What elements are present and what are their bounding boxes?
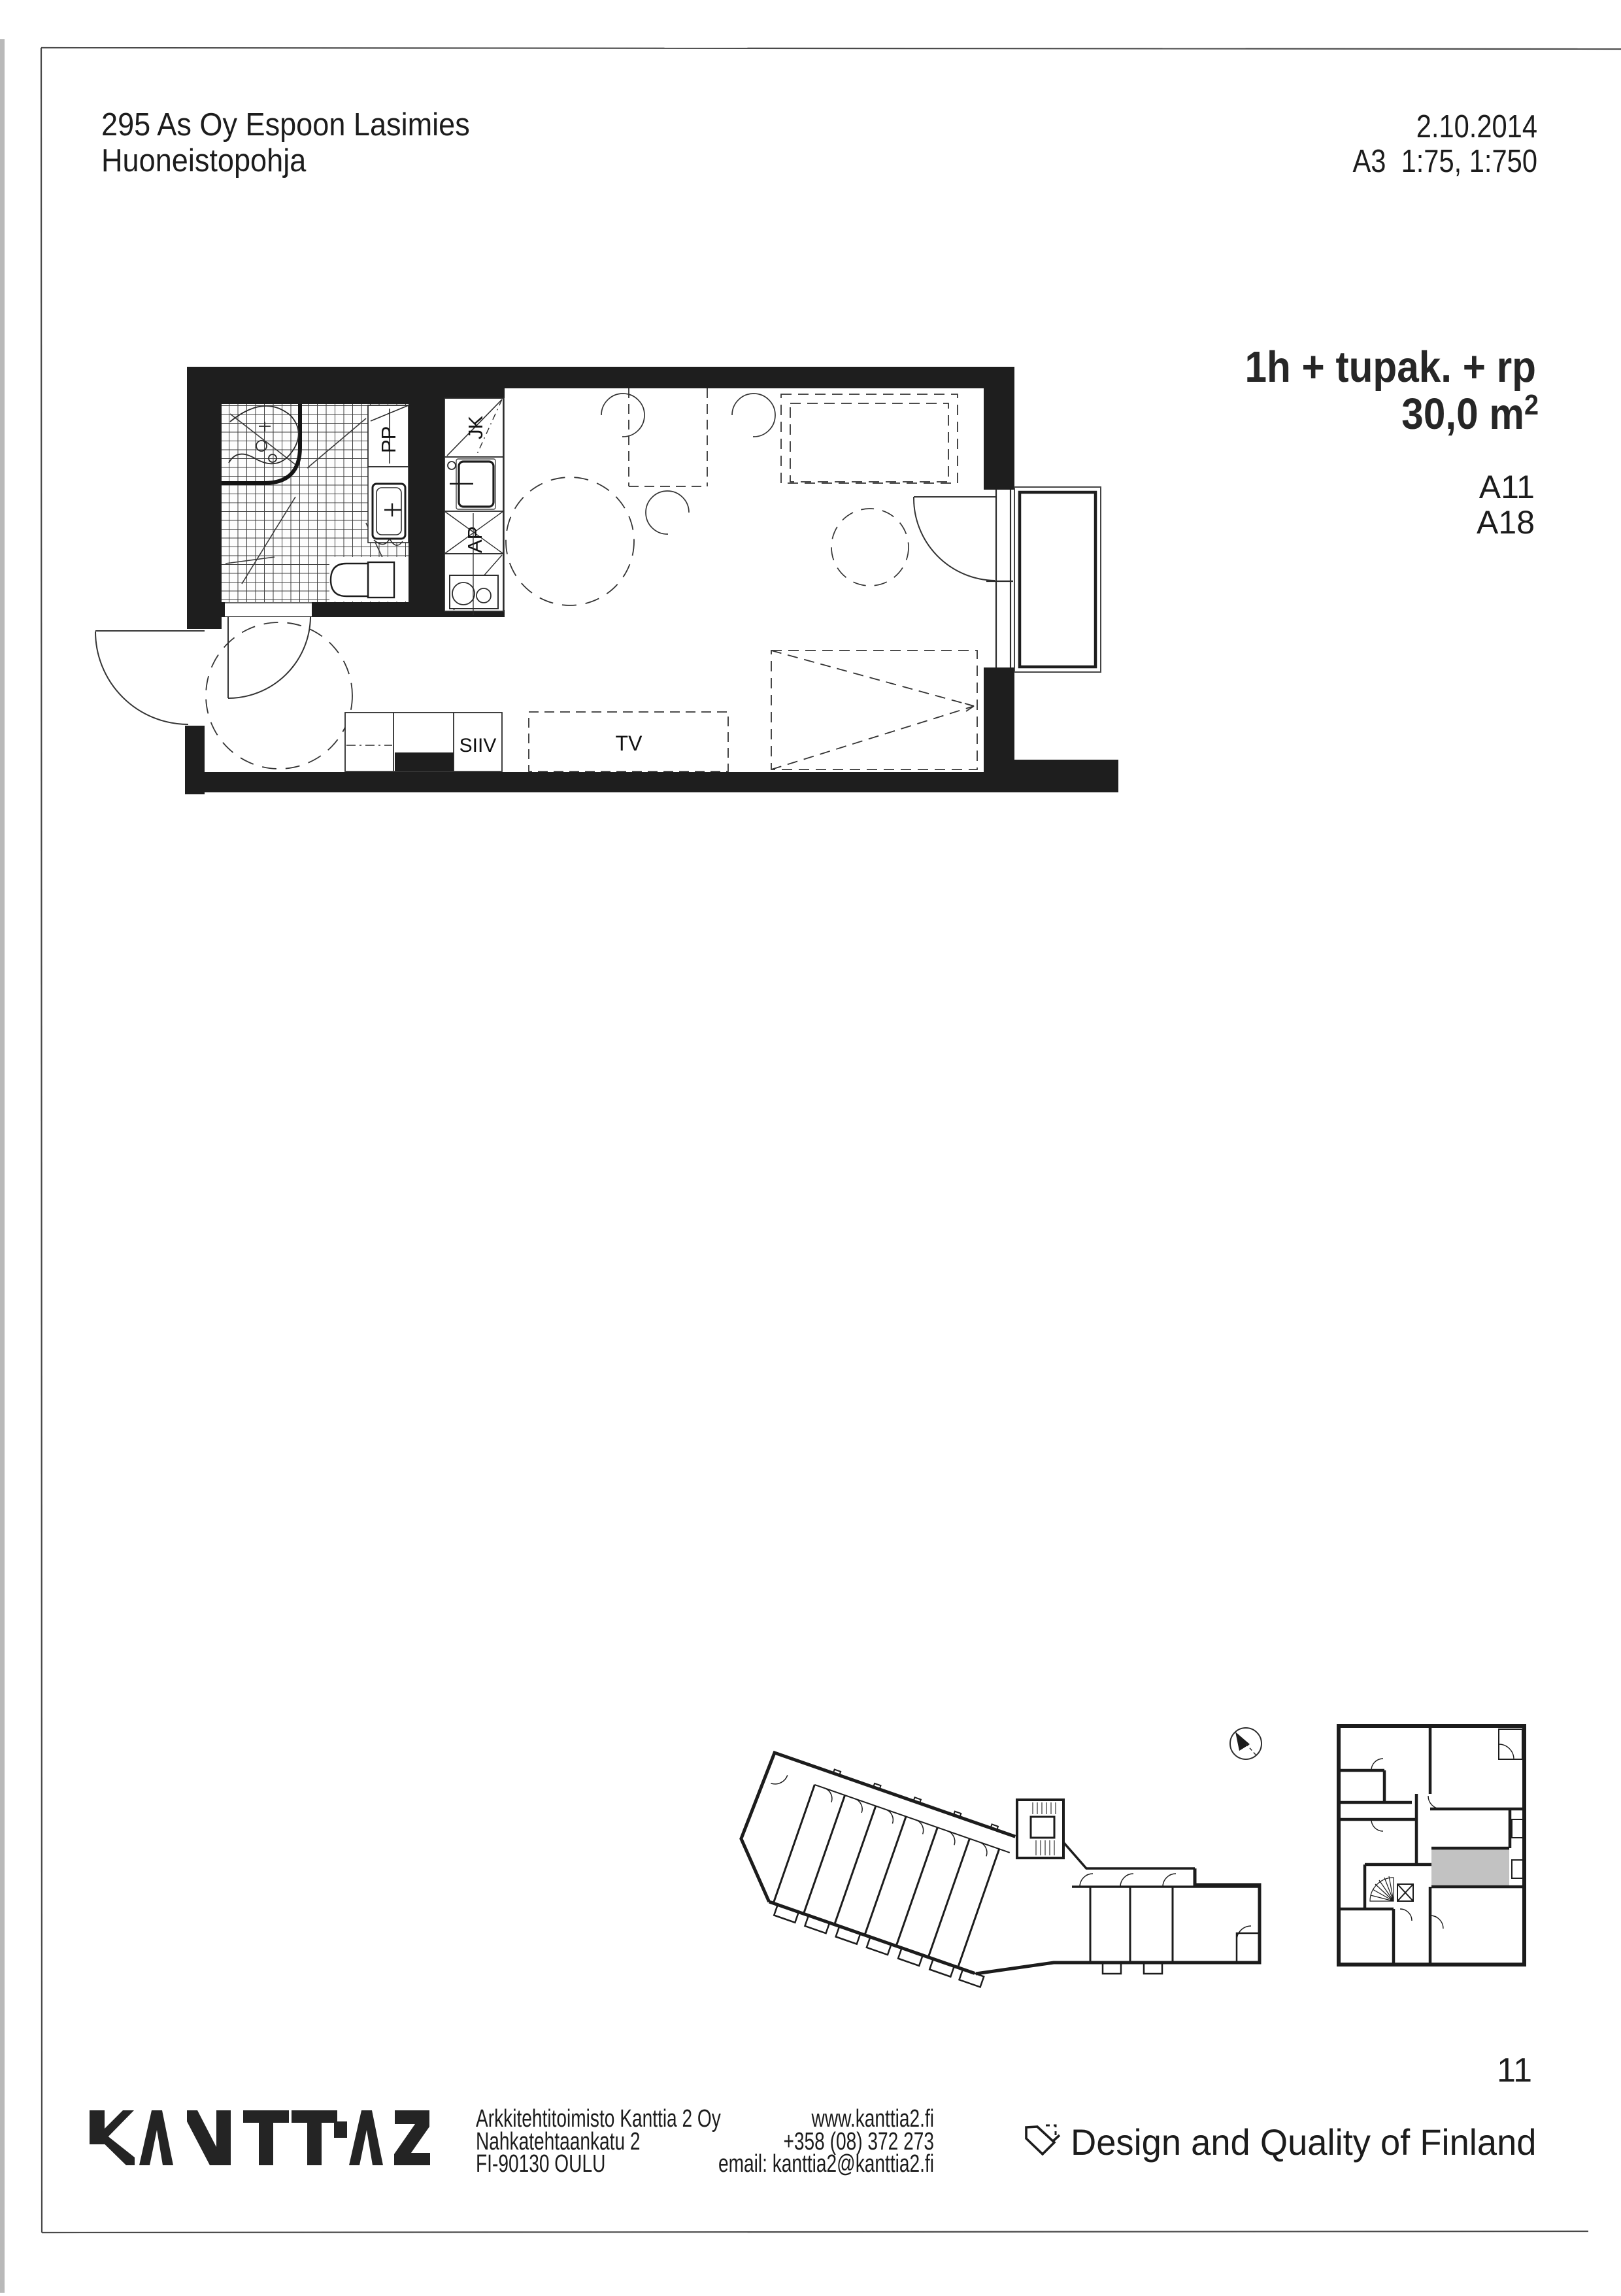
svg-text:Design and Quality of Finland: Design and Quality of Finland [1071,2121,1536,2163]
svg-text:TV: TV [616,732,643,755]
svg-text:AP: AP [463,526,486,553]
svg-text:295 As Oy Espoon Lasimies: 295 As Oy Espoon Lasimies [101,106,470,142]
svg-text:JK: JK [464,416,487,440]
svg-text:30,0 m2: 30,0 m2 [1401,388,1539,439]
svg-text:A3 1:75, 1:750: A3 1:75, 1:750 [1352,143,1537,179]
svg-text:1h + tupak. + rp: 1h + tupak. + rp [1245,342,1536,392]
svg-text:SIIV: SIIV [460,735,497,756]
svg-text:email: kanttia2@kanttia2.fi: email: kanttia2@kanttia2.fi [718,2150,934,2178]
svg-text:A11: A11 [1479,469,1535,505]
svg-text:PP: PP [377,426,400,453]
svg-text:A18: A18 [1477,504,1535,541]
svg-text:2.10.2014: 2.10.2014 [1416,109,1537,144]
svg-text:Huoneistopohja: Huoneistopohja [101,142,307,178]
svg-text:11: 11 [1497,2051,1532,2089]
svg-text:FI-90130 OULU: FI-90130 OULU [476,2150,605,2178]
